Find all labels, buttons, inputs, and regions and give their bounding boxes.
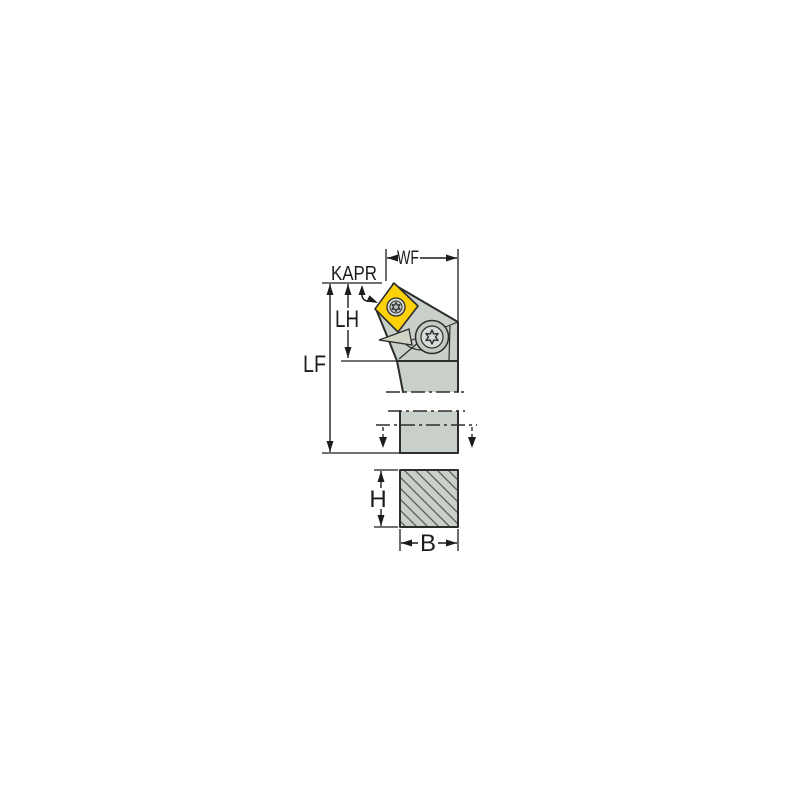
label-b: B [420, 530, 436, 557]
shank-lower-body [400, 411, 458, 453]
kapr-arrow-up [359, 285, 366, 295]
label-lh: LH [335, 306, 359, 333]
tool-holder-diagram: WF KAPR LH LF [0, 0, 800, 800]
section-arrow-right [468, 437, 476, 448]
screenshot-root: WF KAPR LH LF [0, 0, 800, 800]
h-arrow-top [378, 471, 385, 482]
shank-lower-section [376, 411, 477, 453]
kapr-angle-indicator: KAPR [322, 263, 382, 303]
label-h: H [369, 486, 386, 513]
dimension-h: H [369, 470, 398, 527]
b-arrow-left [401, 540, 412, 547]
dimension-b: B [400, 529, 458, 557]
insert-screw [387, 298, 405, 316]
lf-arrow-top [327, 284, 334, 295]
h-arrow-bottom [378, 515, 385, 526]
cross-section-hatch [400, 470, 458, 527]
label-lf: LF [303, 351, 326, 378]
clamp-screw [416, 321, 449, 354]
section-arrow-left [379, 437, 387, 448]
label-wf: WF [397, 248, 419, 269]
b-arrow-right [446, 540, 457, 547]
lf-arrow-bottom [327, 441, 334, 452]
lh-arrow-bottom [345, 347, 352, 358]
cross-section [400, 470, 458, 527]
lh-arrow-top [345, 284, 352, 295]
label-kapr: KAPR [331, 263, 377, 285]
wf-arrow-right [446, 255, 457, 262]
